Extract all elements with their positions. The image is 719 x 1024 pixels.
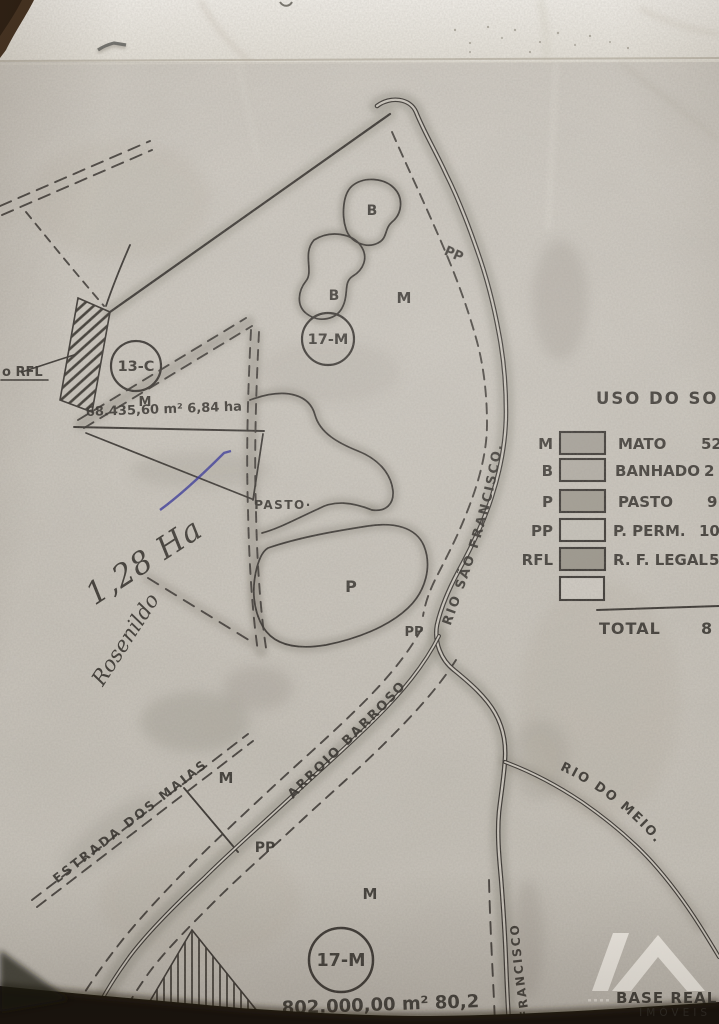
photo-grain — [0, 0, 719, 1024]
photographed-survey-map: 13-C M 68.435,60 m² 6,84 ha 17-M 17-M 80… — [0, 0, 719, 1024]
survey-map-svg: 13-C M 68.435,60 m² 6,84 ha 17-M 17-M 80… — [0, 0, 719, 1024]
watermark-name: BASE REAL — [616, 989, 717, 1007]
watermark-subtitle: IMÓVEIS — [639, 1006, 711, 1019]
